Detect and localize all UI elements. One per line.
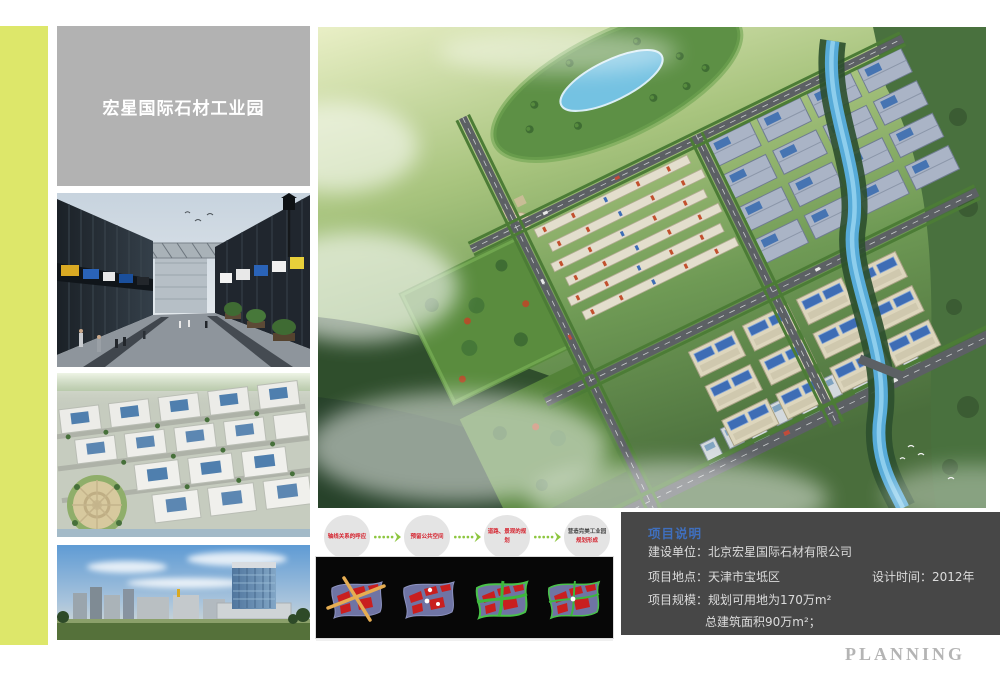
analysis-diagram-panel [316,557,613,638]
circular-plaza [70,478,124,532]
title-box: 宏星国际石材工业园 [57,26,310,186]
accent-stripe [0,26,48,645]
flow-step-label: 营造完美工业园 [568,528,607,537]
public-space-nodes-diagram [396,572,460,624]
flow-step-sublabel: 规划形成 [576,537,598,546]
info-design-time: 设计时间：2012年 [872,568,975,585]
info-owner: 建设单位：北京宏星国际石材有限公司 [648,543,852,560]
flow-step-label: 道路、景观的规划 [486,528,528,546]
flow-step-public-space: 预留公共空间 [404,515,450,559]
info-scale: 项目规模：规划可用地为170万m² [648,591,831,608]
flow-step-label: 预留公共空间 [410,533,443,542]
info-heading: 项目说明 [648,523,702,542]
aerial-view-illustration [57,373,310,537]
master-plan-aerial-rendering [318,27,986,508]
design-process-flow: 轴线关系的呼应 预留公共空间 道路、景观的规划 营造完美工业园 规划形成 [324,515,610,559]
street-view-rendering [57,193,310,367]
dashed-arrow-right-icon [374,531,401,543]
flow-step-road-landscape: 道路、景观的规划 [484,515,530,559]
project-description-box: 项目说明 建设单位：北京宏星国际石材有限公司 项目地点：天津市宝坻区 设计时间：… [621,512,1000,635]
info-location-row: 项目地点：天津市宝坻区 设计时间：2012年 [648,568,780,585]
road-network-diagram [469,572,533,624]
flow-step-final-plan: 营造完美工业园 规划形成 [564,515,610,559]
skyline-illustration [57,545,310,640]
aerial-view-rendering [57,373,310,537]
master-plan-illustration [318,27,986,508]
skyline-rendering [57,545,310,640]
page-title: 宏星国际石材工业园 [103,94,265,119]
info-area: 总建筑面积90万m²； [648,613,821,630]
presentation-board: 宏星国际石材工业园 [0,0,1000,678]
dashed-arrow-right-icon [534,531,561,543]
street-view-illustration [57,193,310,367]
dashed-arrow-right-icon [454,531,481,543]
info-location: 项目地点：天津市宝坻区 [648,570,780,584]
planning-watermark: PLANNING [845,644,965,665]
final-plan-diagram [541,572,605,624]
flow-step-axis: 轴线关系的呼应 [324,515,370,559]
axis-cross-diagram [324,572,388,624]
flow-step-label: 轴线关系的呼应 [328,533,367,542]
